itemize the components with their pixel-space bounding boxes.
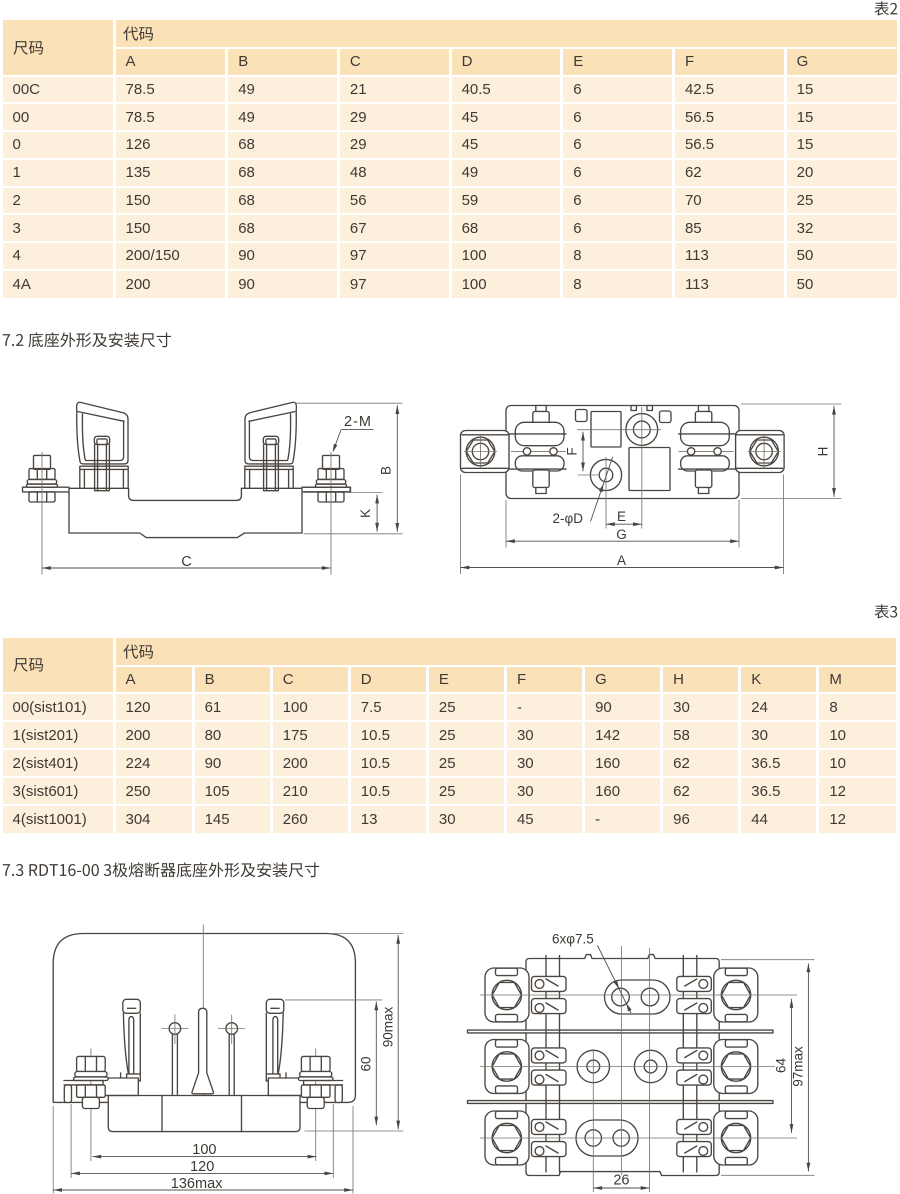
svg-text:26: 26 [613,1173,629,1189]
svg-text:B: B [379,466,394,475]
svg-text:C: C [181,554,191,570]
svg-text:2-φD: 2-φD [553,511,584,526]
svg-text:A: A [617,553,626,568]
svg-text:100: 100 [192,1142,216,1158]
svg-text:2-M: 2-M [344,414,372,430]
svg-text:136max: 136max [171,1176,223,1192]
svg-text:97max: 97max [790,1046,805,1087]
svg-text:60: 60 [358,1056,373,1071]
svg-text:64: 64 [774,1058,789,1074]
svg-text:90max: 90max [380,1006,395,1047]
svg-text:120: 120 [190,1159,214,1175]
svg-text:6xφ7.5: 6xφ7.5 [552,932,594,947]
svg-text:E: E [617,509,626,524]
svg-text:F: F [565,447,580,455]
svg-text:K: K [358,509,373,518]
svg-text:G: G [616,527,627,542]
svg-text:H: H [815,447,830,457]
